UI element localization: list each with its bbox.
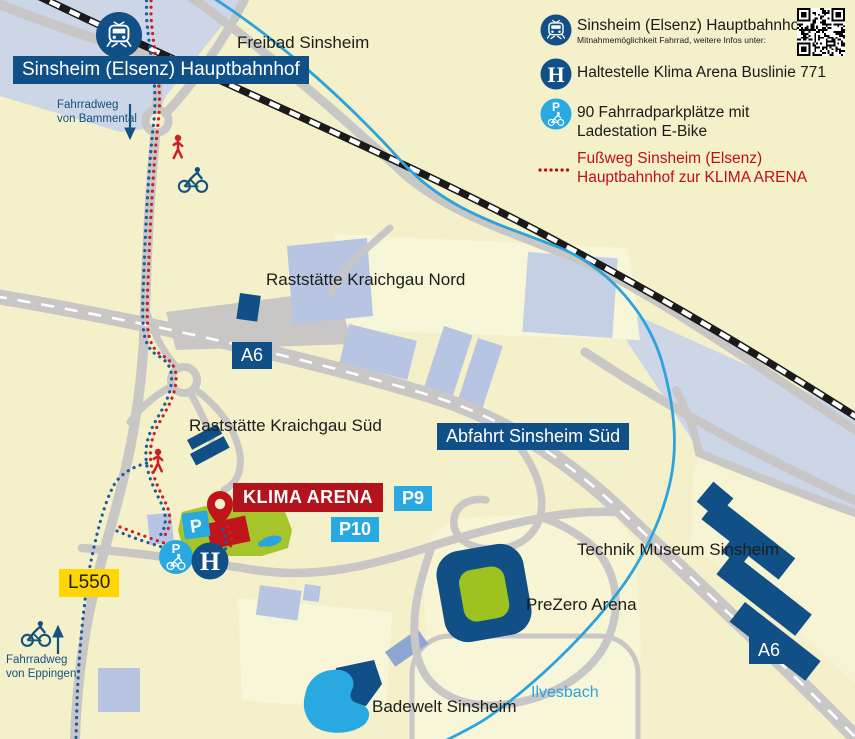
label-ilvesbach: Ilvesbach bbox=[531, 684, 599, 702]
label-raststaette-sued: Raststätte Kraichgau Süd bbox=[189, 416, 382, 436]
lot-south-2 bbox=[303, 584, 321, 602]
label-freibad: Freibad Sinsheim bbox=[237, 33, 369, 53]
svg-text:P: P bbox=[552, 100, 560, 114]
svg-text:H: H bbox=[200, 547, 220, 576]
lot-bottom-left bbox=[98, 668, 140, 712]
parking-square-icon: P bbox=[181, 510, 210, 539]
label-eppingen: Fahrradwegvon Eppingen bbox=[6, 653, 76, 682]
label-eppingen-line1: Fahrradweg bbox=[6, 654, 67, 666]
legend-footpath-line2: Hauptbahnhof zur KLIMA ARENA bbox=[577, 169, 807, 186]
legend-bus-stop-label: Haltestelle Klima Arena Buslinie 771 bbox=[577, 64, 826, 83]
park-pond-2 bbox=[258, 541, 264, 547]
bike-parking-icon: P bbox=[159, 540, 193, 574]
label-prezero: PreZero Arena bbox=[526, 595, 637, 615]
legend-station-icon bbox=[540, 14, 572, 46]
label-bammental-line1: Fahrradweg bbox=[57, 99, 118, 111]
svg-text:P: P bbox=[172, 541, 181, 556]
prezero-arena-stadium bbox=[433, 540, 536, 646]
label-eppingen-line2: von Eppingen bbox=[6, 668, 76, 680]
legend-station-subtitle: Mitnahmemöglichkeit Fahrrad, weitere Inf… bbox=[577, 35, 766, 45]
station-badge: Sinsheim (Elsenz) Hauptbahnhof bbox=[13, 56, 309, 84]
sinsheim-klima-arena-map: P P H Sinsheim (Elsenz) Hauptbahnhof Fre… bbox=[0, 0, 855, 739]
svg-text:H: H bbox=[547, 62, 564, 87]
label-badewelt: Badewelt Sinsheim bbox=[372, 697, 517, 717]
label-bammental-line2: von Bammental bbox=[57, 113, 137, 125]
legend-bus-stop-icon: H bbox=[540, 58, 572, 90]
legend-bike-parking-icon: P bbox=[540, 98, 572, 130]
roundabout-station bbox=[146, 110, 169, 133]
legend-footpath-icon bbox=[537, 160, 575, 178]
l550-badge: L550 bbox=[59, 569, 119, 597]
abfahrt-badge: Abfahrt Sinsheim Süd bbox=[437, 423, 629, 450]
a6-badge-north: A6 bbox=[232, 342, 272, 369]
legend-bike-parking-label: 90 Fahrradparkplätze mitLadestation E-Bi… bbox=[577, 104, 749, 142]
legend-footpath-label: Fußweg Sinsheim (Elsenz)Hauptbahnhof zur… bbox=[577, 150, 807, 188]
label-technik-museum: Technik Museum Sinsheim bbox=[577, 540, 779, 560]
p9-badge: P9 bbox=[394, 486, 432, 511]
label-raststaette-nord: Raststätte Kraichgau Nord bbox=[266, 270, 465, 290]
legend-station-title: Sinsheim (Elsenz) Hauptbahnhof bbox=[577, 17, 804, 36]
qr-code bbox=[797, 8, 845, 56]
building-nord bbox=[236, 293, 260, 322]
klima-arena-badge: KLIMA ARENA bbox=[233, 483, 383, 512]
label-bammental: Fahrradwegvon Bammental bbox=[57, 98, 137, 127]
bus-stop-icon: H bbox=[192, 543, 229, 580]
lot-south-1 bbox=[256, 585, 302, 621]
legend-bike-parking-line1: 90 Fahrradparkplätze mit bbox=[577, 104, 749, 121]
legend-bike-parking-line2: Ladestation E-Bike bbox=[577, 123, 707, 140]
p10-badge: P10 bbox=[331, 517, 379, 542]
station-icon bbox=[96, 12, 142, 58]
legend-footpath-line1: Fußweg Sinsheim (Elsenz) bbox=[577, 150, 762, 167]
a6-badge-south: A6 bbox=[749, 637, 789, 664]
